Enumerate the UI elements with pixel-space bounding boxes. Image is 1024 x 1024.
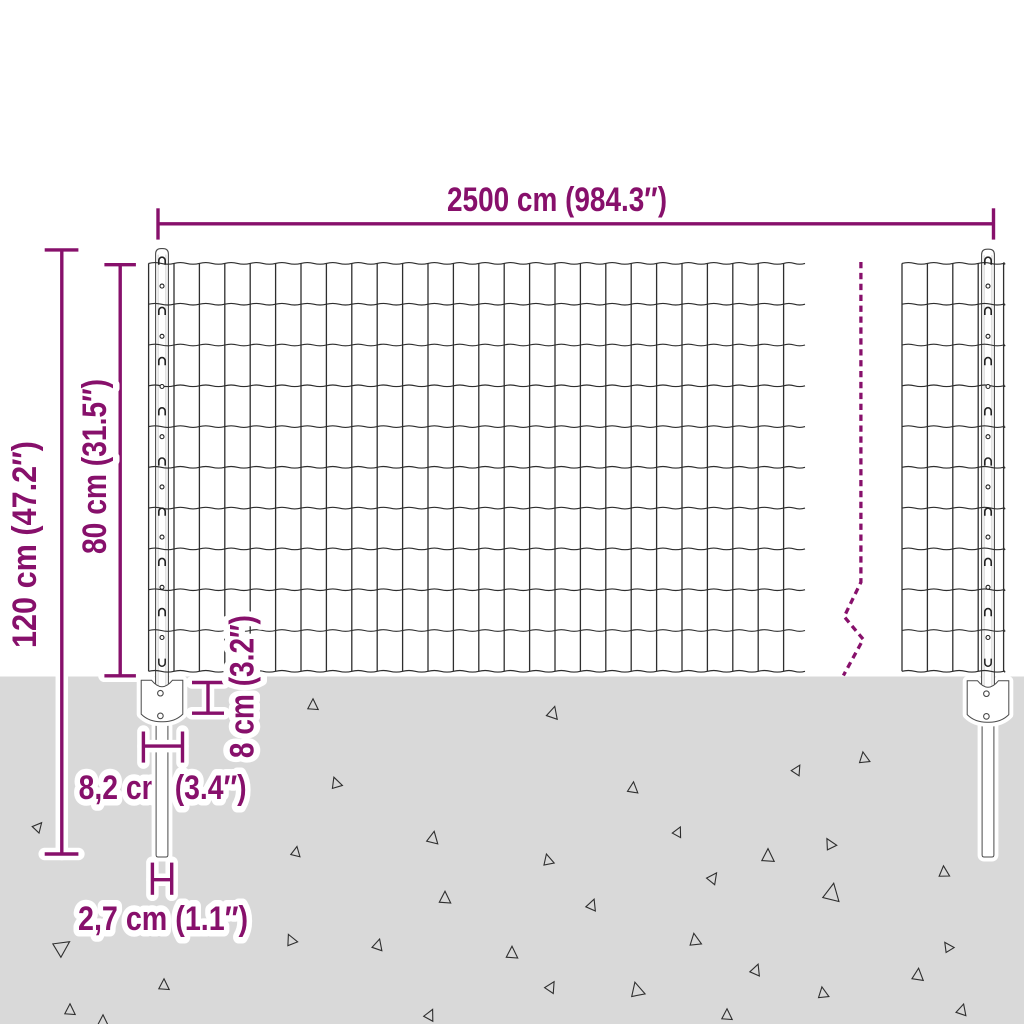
svg-text:8 cm (3.2″): 8 cm (3.2″): [224, 615, 262, 758]
svg-text:120 cm (47.2″): 120 cm (47.2″): [6, 441, 44, 648]
svg-text:2500 cm (984.3″): 2500 cm (984.3″): [447, 181, 667, 219]
svg-text:80 cm (31.5″): 80 cm (31.5″): [76, 379, 114, 554]
svg-text:2,7 cm (1.1″): 2,7 cm (1.1″): [78, 900, 248, 938]
